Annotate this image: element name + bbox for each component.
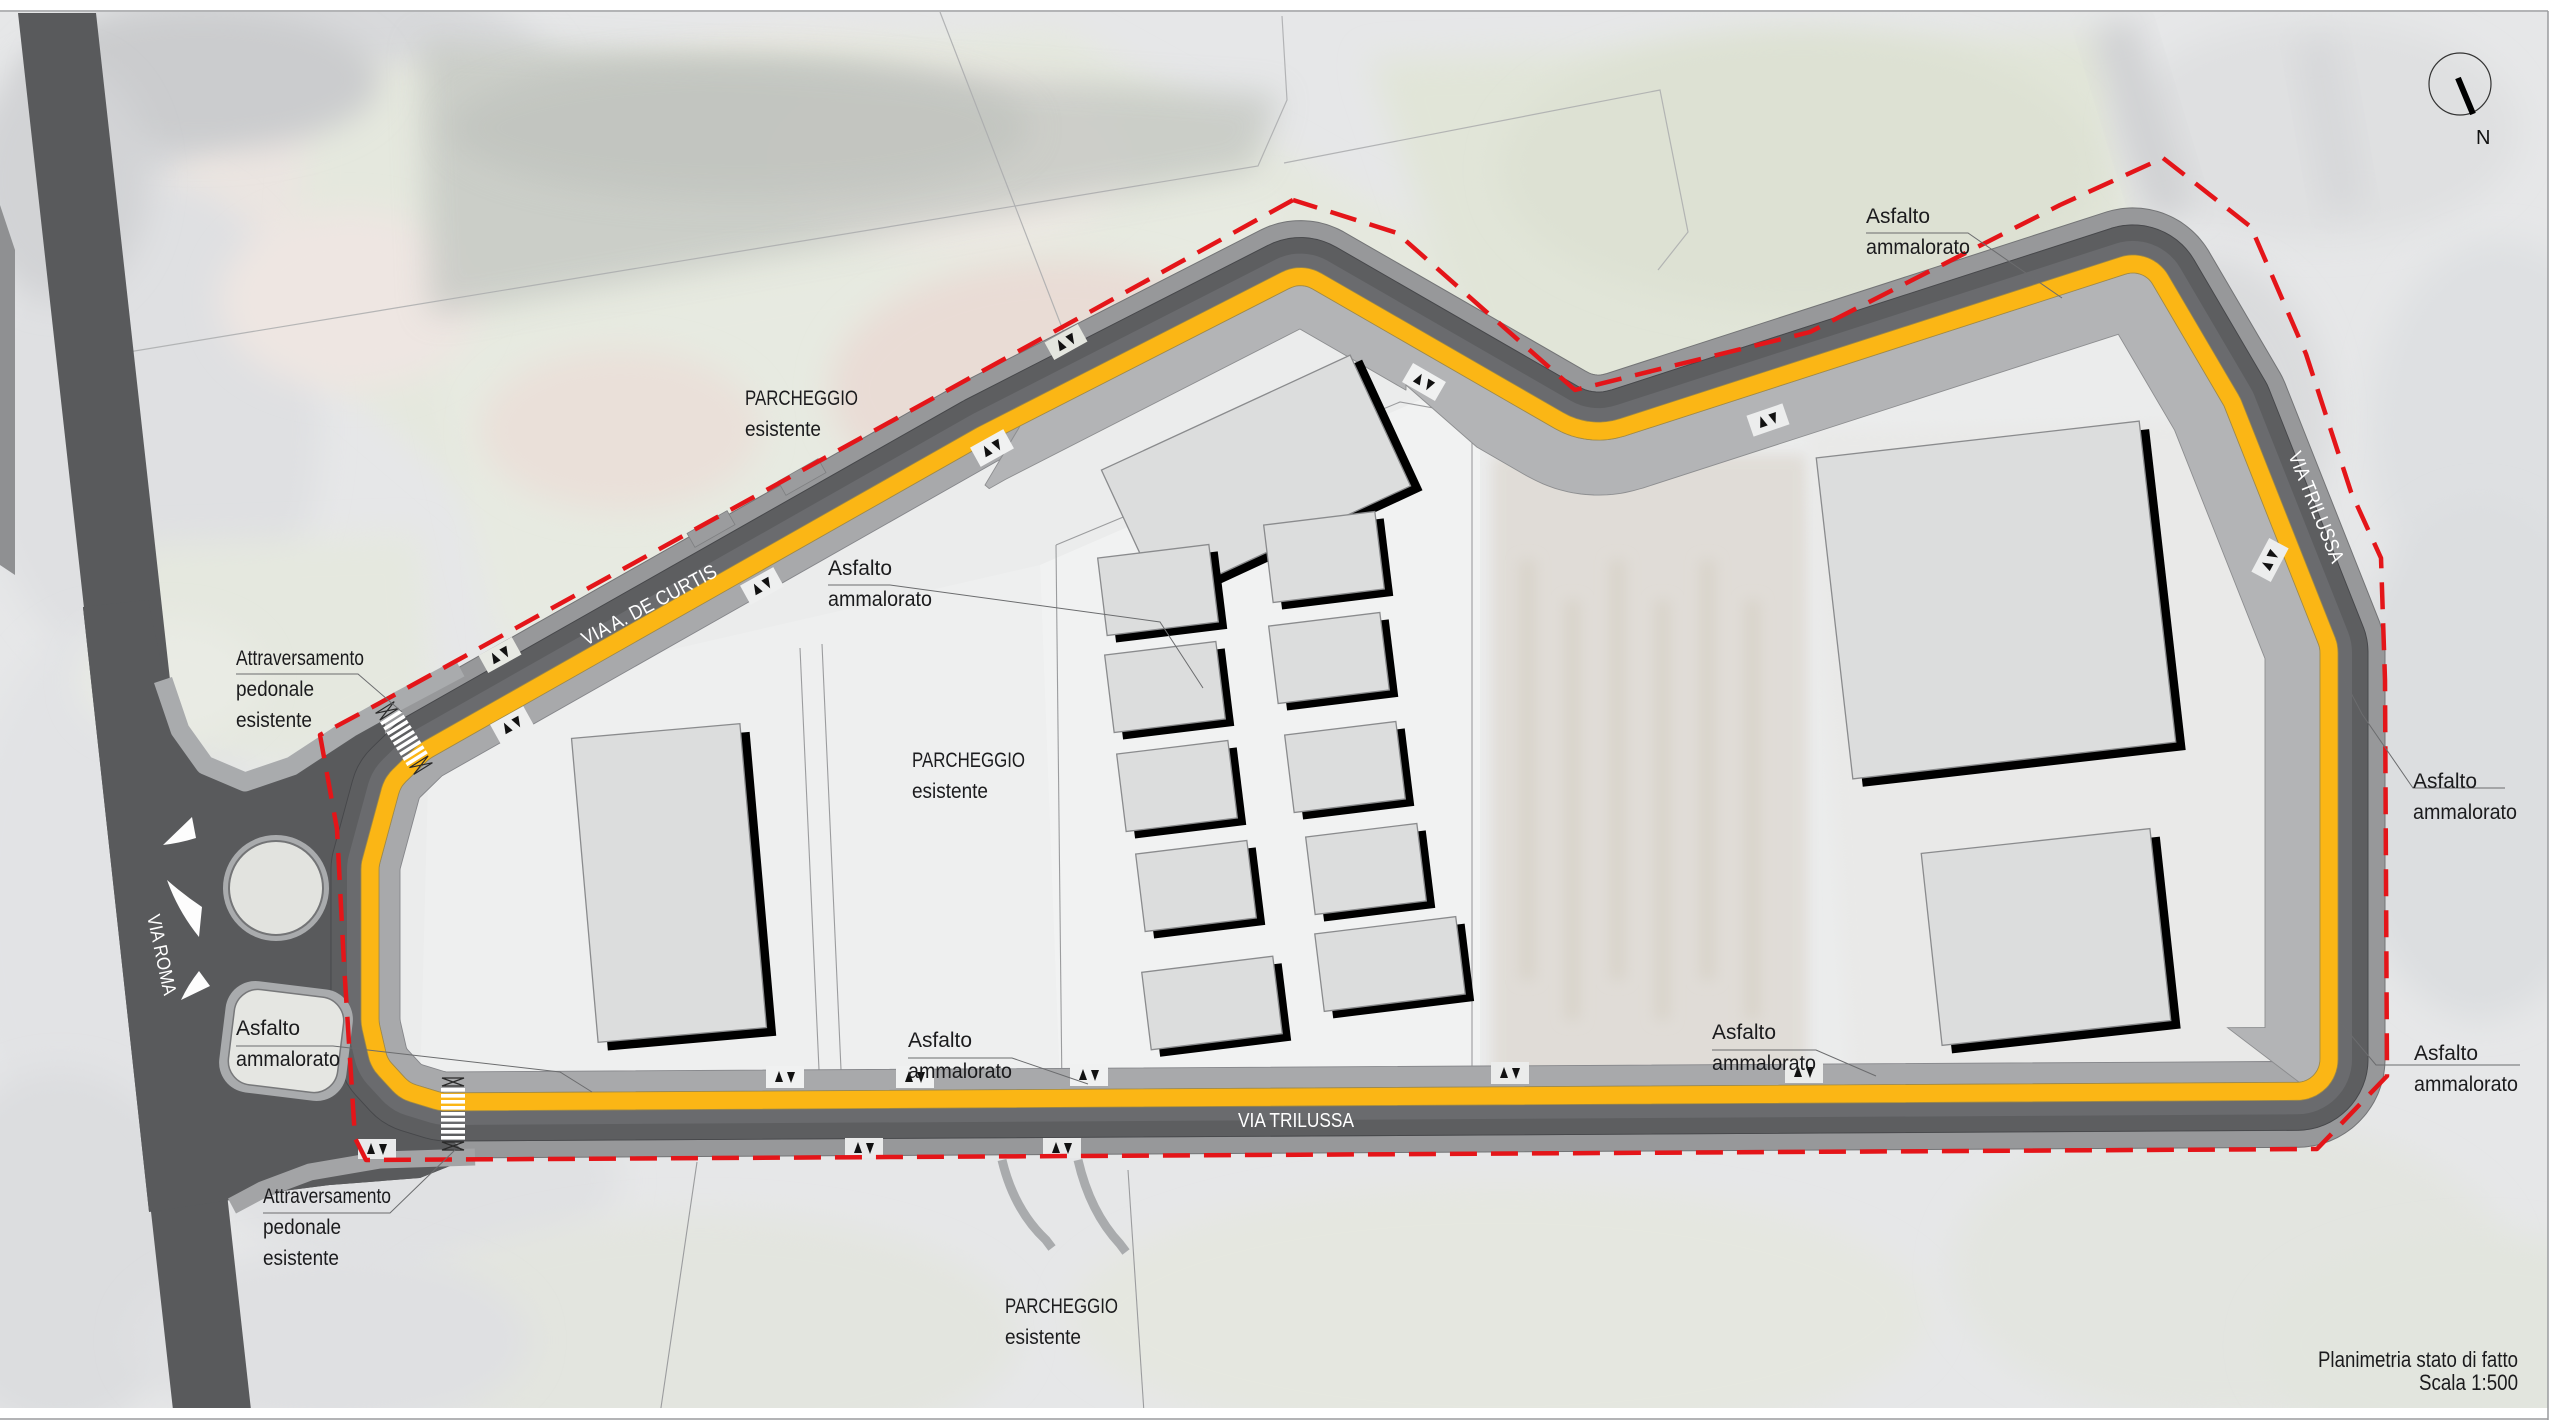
svg-text:VIA TRILUSSA: VIA TRILUSSA <box>1238 1110 1355 1132</box>
svg-text:Scala 1:500: Scala 1:500 <box>2419 1370 2518 1395</box>
svg-text:Planimetria stato di fatto: Planimetria stato di fatto <box>2318 1347 2518 1372</box>
svg-text:pedonale: pedonale <box>263 1216 341 1239</box>
svg-text:Attraversamento: Attraversamento <box>263 1185 391 1208</box>
svg-text:Asfalto: Asfalto <box>908 1029 972 1052</box>
svg-text:Asfalto: Asfalto <box>828 557 892 580</box>
svg-text:ammalorato: ammalorato <box>236 1048 340 1071</box>
svg-text:pedonale: pedonale <box>236 678 314 701</box>
svg-text:esistente: esistente <box>745 418 821 441</box>
svg-text:ammalorato: ammalorato <box>2414 1073 2518 1096</box>
svg-text:PARCHEGGIO: PARCHEGGIO <box>745 387 858 410</box>
svg-text:Asfalto: Asfalto <box>2414 1042 2478 1065</box>
svg-text:ammalorato: ammalorato <box>908 1060 1012 1083</box>
svg-text:ammalorato: ammalorato <box>2413 801 2517 824</box>
svg-text:ammalorato: ammalorato <box>1712 1052 1816 1075</box>
svg-text:esistente: esistente <box>263 1247 339 1270</box>
svg-text:PARCHEGGIO: PARCHEGGIO <box>912 749 1025 772</box>
svg-text:esistente: esistente <box>236 709 312 732</box>
svg-text:Attraversamento: Attraversamento <box>236 647 364 670</box>
svg-text:esistente: esistente <box>912 780 988 803</box>
svg-text:Asfalto: Asfalto <box>236 1017 300 1040</box>
svg-text:esistente: esistente <box>1005 1326 1081 1349</box>
svg-text:ammalorato: ammalorato <box>1866 236 1970 259</box>
svg-text:PARCHEGGIO: PARCHEGGIO <box>1005 1295 1118 1318</box>
svg-text:Asfalto: Asfalto <box>2413 770 2477 793</box>
svg-text:Asfalto: Asfalto <box>1866 205 1930 228</box>
svg-text:ammalorato: ammalorato <box>828 588 932 611</box>
svg-text:Asfalto: Asfalto <box>1712 1021 1776 1044</box>
svg-text:N: N <box>2476 127 2490 149</box>
